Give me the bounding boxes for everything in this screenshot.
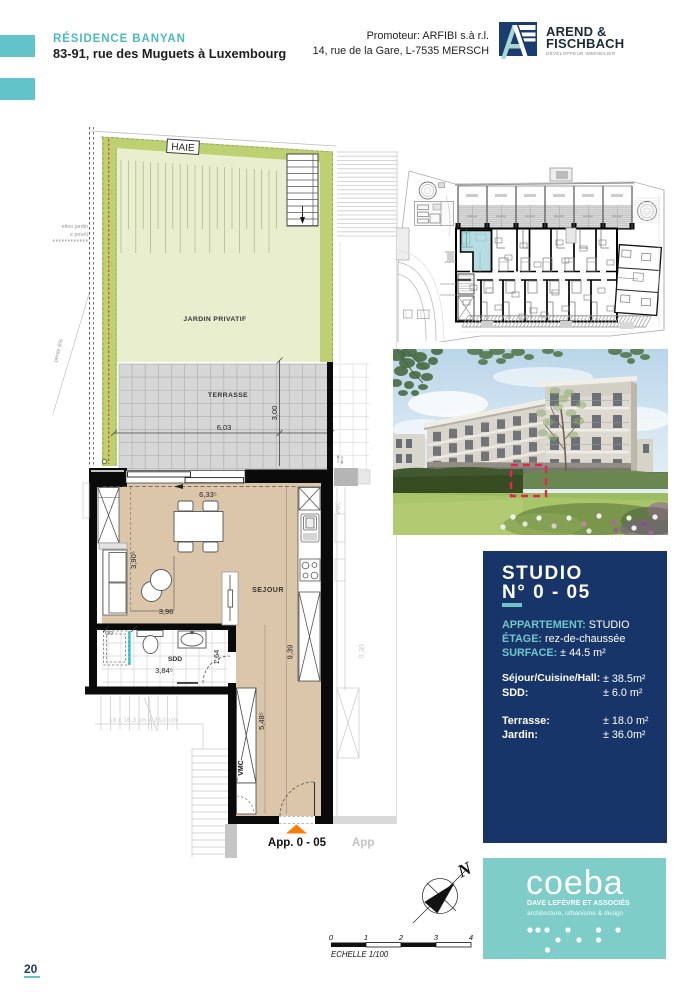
svg-text:2: 2 <box>398 933 404 942</box>
svg-text:VMC: VMC <box>238 760 245 776</box>
svg-text:3: 3 <box>434 933 439 942</box>
svg-text:ECHELLE 1/100: ECHELLE 1/100 <box>331 950 389 959</box>
svg-text:6,03: 6,03 <box>217 423 232 432</box>
svg-text:1,64: 1,64 <box>212 650 221 665</box>
svg-text:18 x 16,3 cm x 28,0 cm: 18 x 16,3 cm x 28,0 cm <box>109 717 178 724</box>
svg-text:0: 0 <box>329 933 334 942</box>
svg-text:4: 4 <box>469 933 473 942</box>
svg-text:3,96: 3,96 <box>159 607 174 616</box>
svg-text:SDD: SDD <box>168 656 182 663</box>
svg-text:HAIE: HAIE <box>171 142 195 154</box>
svg-text:etien jardin: etien jardin <box>62 224 88 230</box>
svg-text:App. 0 - 05: App. 0 - 05 <box>268 837 327 849</box>
svg-text:3,90⁵: 3,90⁵ <box>129 551 138 569</box>
svg-text:9,39: 9,39 <box>357 644 366 659</box>
svg-text:e privé): e privé) <box>70 232 88 238</box>
svg-text:VMC: VMC <box>336 501 342 515</box>
svg-text:5,48⁵: 5,48⁵ <box>257 712 266 730</box>
svg-text:3,00: 3,00 <box>270 406 279 421</box>
svg-text:3,84⁵: 3,84⁵ <box>155 666 173 675</box>
svg-text:SEJOUR: SEJOUR <box>252 587 284 594</box>
svg-text:6,33⁵: 6,33⁵ <box>199 490 217 499</box>
svg-text:1: 1 <box>364 933 368 942</box>
svg-text:9,39: 9,39 <box>286 645 295 660</box>
svg-text:JARDIN PRIVATIF: JARDIN PRIVATIF <box>183 316 246 323</box>
svg-text:App: App <box>352 837 374 849</box>
svg-text:TERRASSE: TERRASSE <box>208 392 248 399</box>
svg-text:pente 6%: pente 6% <box>53 339 65 363</box>
svg-text:N: N <box>453 857 475 881</box>
